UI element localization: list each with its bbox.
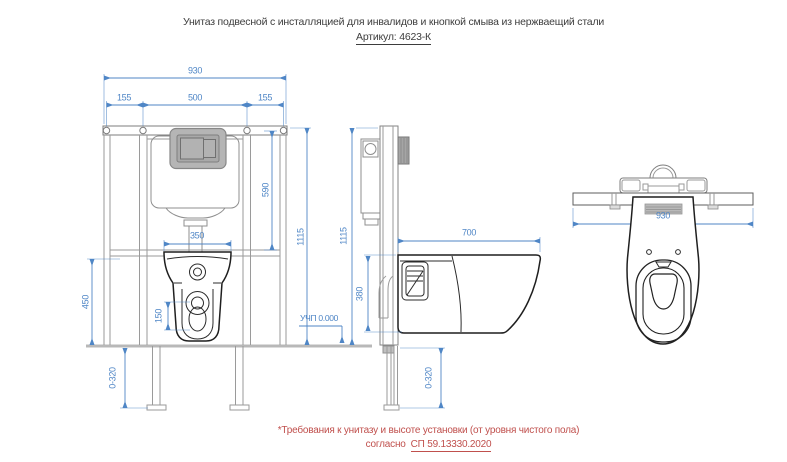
- dim-side-bowl-depth: 700: [462, 229, 476, 238]
- top-view: [573, 165, 753, 344]
- standard-reference: СП 59.13330.2020: [411, 439, 492, 452]
- cistern-top: [620, 165, 707, 193]
- footnote-prefix: согласно: [366, 439, 406, 450]
- technical-drawing: [0, 0, 787, 462]
- flush-button-side: [398, 137, 409, 164]
- title-block: Унитаз подвесной с инсталляцией для инва…: [0, 16, 787, 43]
- drawing-title: Унитаз подвесной с инсталляцией для инва…: [0, 16, 787, 28]
- dim-front-right-offset: 155: [258, 94, 272, 103]
- dim-front-bowl-width: 350: [190, 232, 204, 241]
- frame-legs-front: [147, 346, 249, 410]
- dim-front-leg-range: 0-320: [109, 367, 118, 389]
- dim-front-left-offset: 155: [117, 94, 131, 103]
- dim-side-frame-height: 1115: [340, 227, 349, 245]
- dim-front-frame-height: 1115: [297, 228, 306, 246]
- dim-front-drain-height: 150: [155, 309, 164, 323]
- dim-front-center-width: 500: [188, 94, 202, 103]
- flush-plate-front: [170, 129, 226, 169]
- dim-front-upper-section: 590: [262, 183, 271, 197]
- side-view: [299, 126, 540, 410]
- cistern-side: [361, 139, 382, 225]
- drawing-sheet: Унитаз подвесной с инсталляцией для инва…: [0, 0, 787, 462]
- front-view: [87, 74, 311, 410]
- floor-level-mark: УЧП 0.000: [300, 314, 338, 323]
- toilet-side: [398, 255, 540, 333]
- footnote-requirements: *Требования к унитазу и высоте установки…: [70, 425, 787, 436]
- toilet-front: [164, 252, 231, 341]
- front-dimensions: [87, 74, 311, 408]
- dim-front-overall-width: 930: [188, 67, 202, 76]
- drain-connector: [383, 346, 394, 353]
- footnote: *Требования к унитазу и высоте установки…: [70, 425, 787, 450]
- dim-side-leg-range: 0-320: [425, 367, 434, 389]
- frame-legs-side: [384, 346, 399, 410]
- article-number: Артикул: 4623-К: [0, 31, 787, 43]
- dim-top-overall-width: 930: [656, 212, 670, 221]
- dim-front-seat-height: 450: [82, 295, 91, 309]
- footnote-standard: согласноСП 59.13330.2020: [70, 439, 787, 450]
- dim-side-bowl-height: 380: [356, 287, 365, 301]
